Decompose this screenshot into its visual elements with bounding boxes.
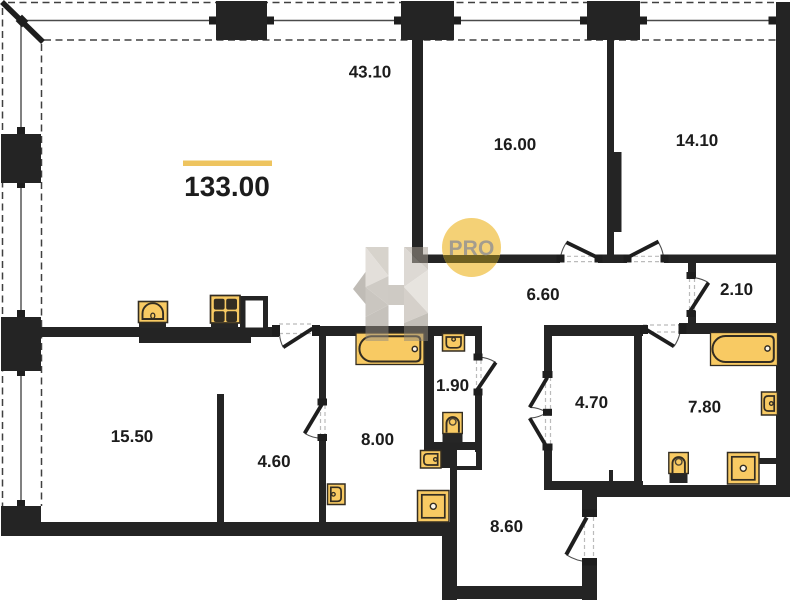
svg-text:4.60: 4.60 — [257, 452, 290, 471]
svg-text:8.60: 8.60 — [490, 517, 523, 536]
svg-text:43.10: 43.10 — [349, 63, 392, 82]
svg-text:14.10: 14.10 — [676, 131, 719, 150]
svg-text:PRO: PRO — [448, 237, 494, 260]
svg-text:16.00: 16.00 — [494, 135, 537, 154]
svg-text:8.00: 8.00 — [361, 430, 394, 449]
svg-text:15.50: 15.50 — [111, 427, 154, 446]
svg-text:4.70: 4.70 — [575, 393, 608, 412]
svg-text:6.60: 6.60 — [526, 285, 559, 304]
svg-text:2.10: 2.10 — [720, 280, 753, 299]
svg-text:1.90: 1.90 — [436, 376, 469, 395]
svg-text:133.00: 133.00 — [184, 171, 270, 202]
svg-text:7.80: 7.80 — [688, 398, 721, 417]
